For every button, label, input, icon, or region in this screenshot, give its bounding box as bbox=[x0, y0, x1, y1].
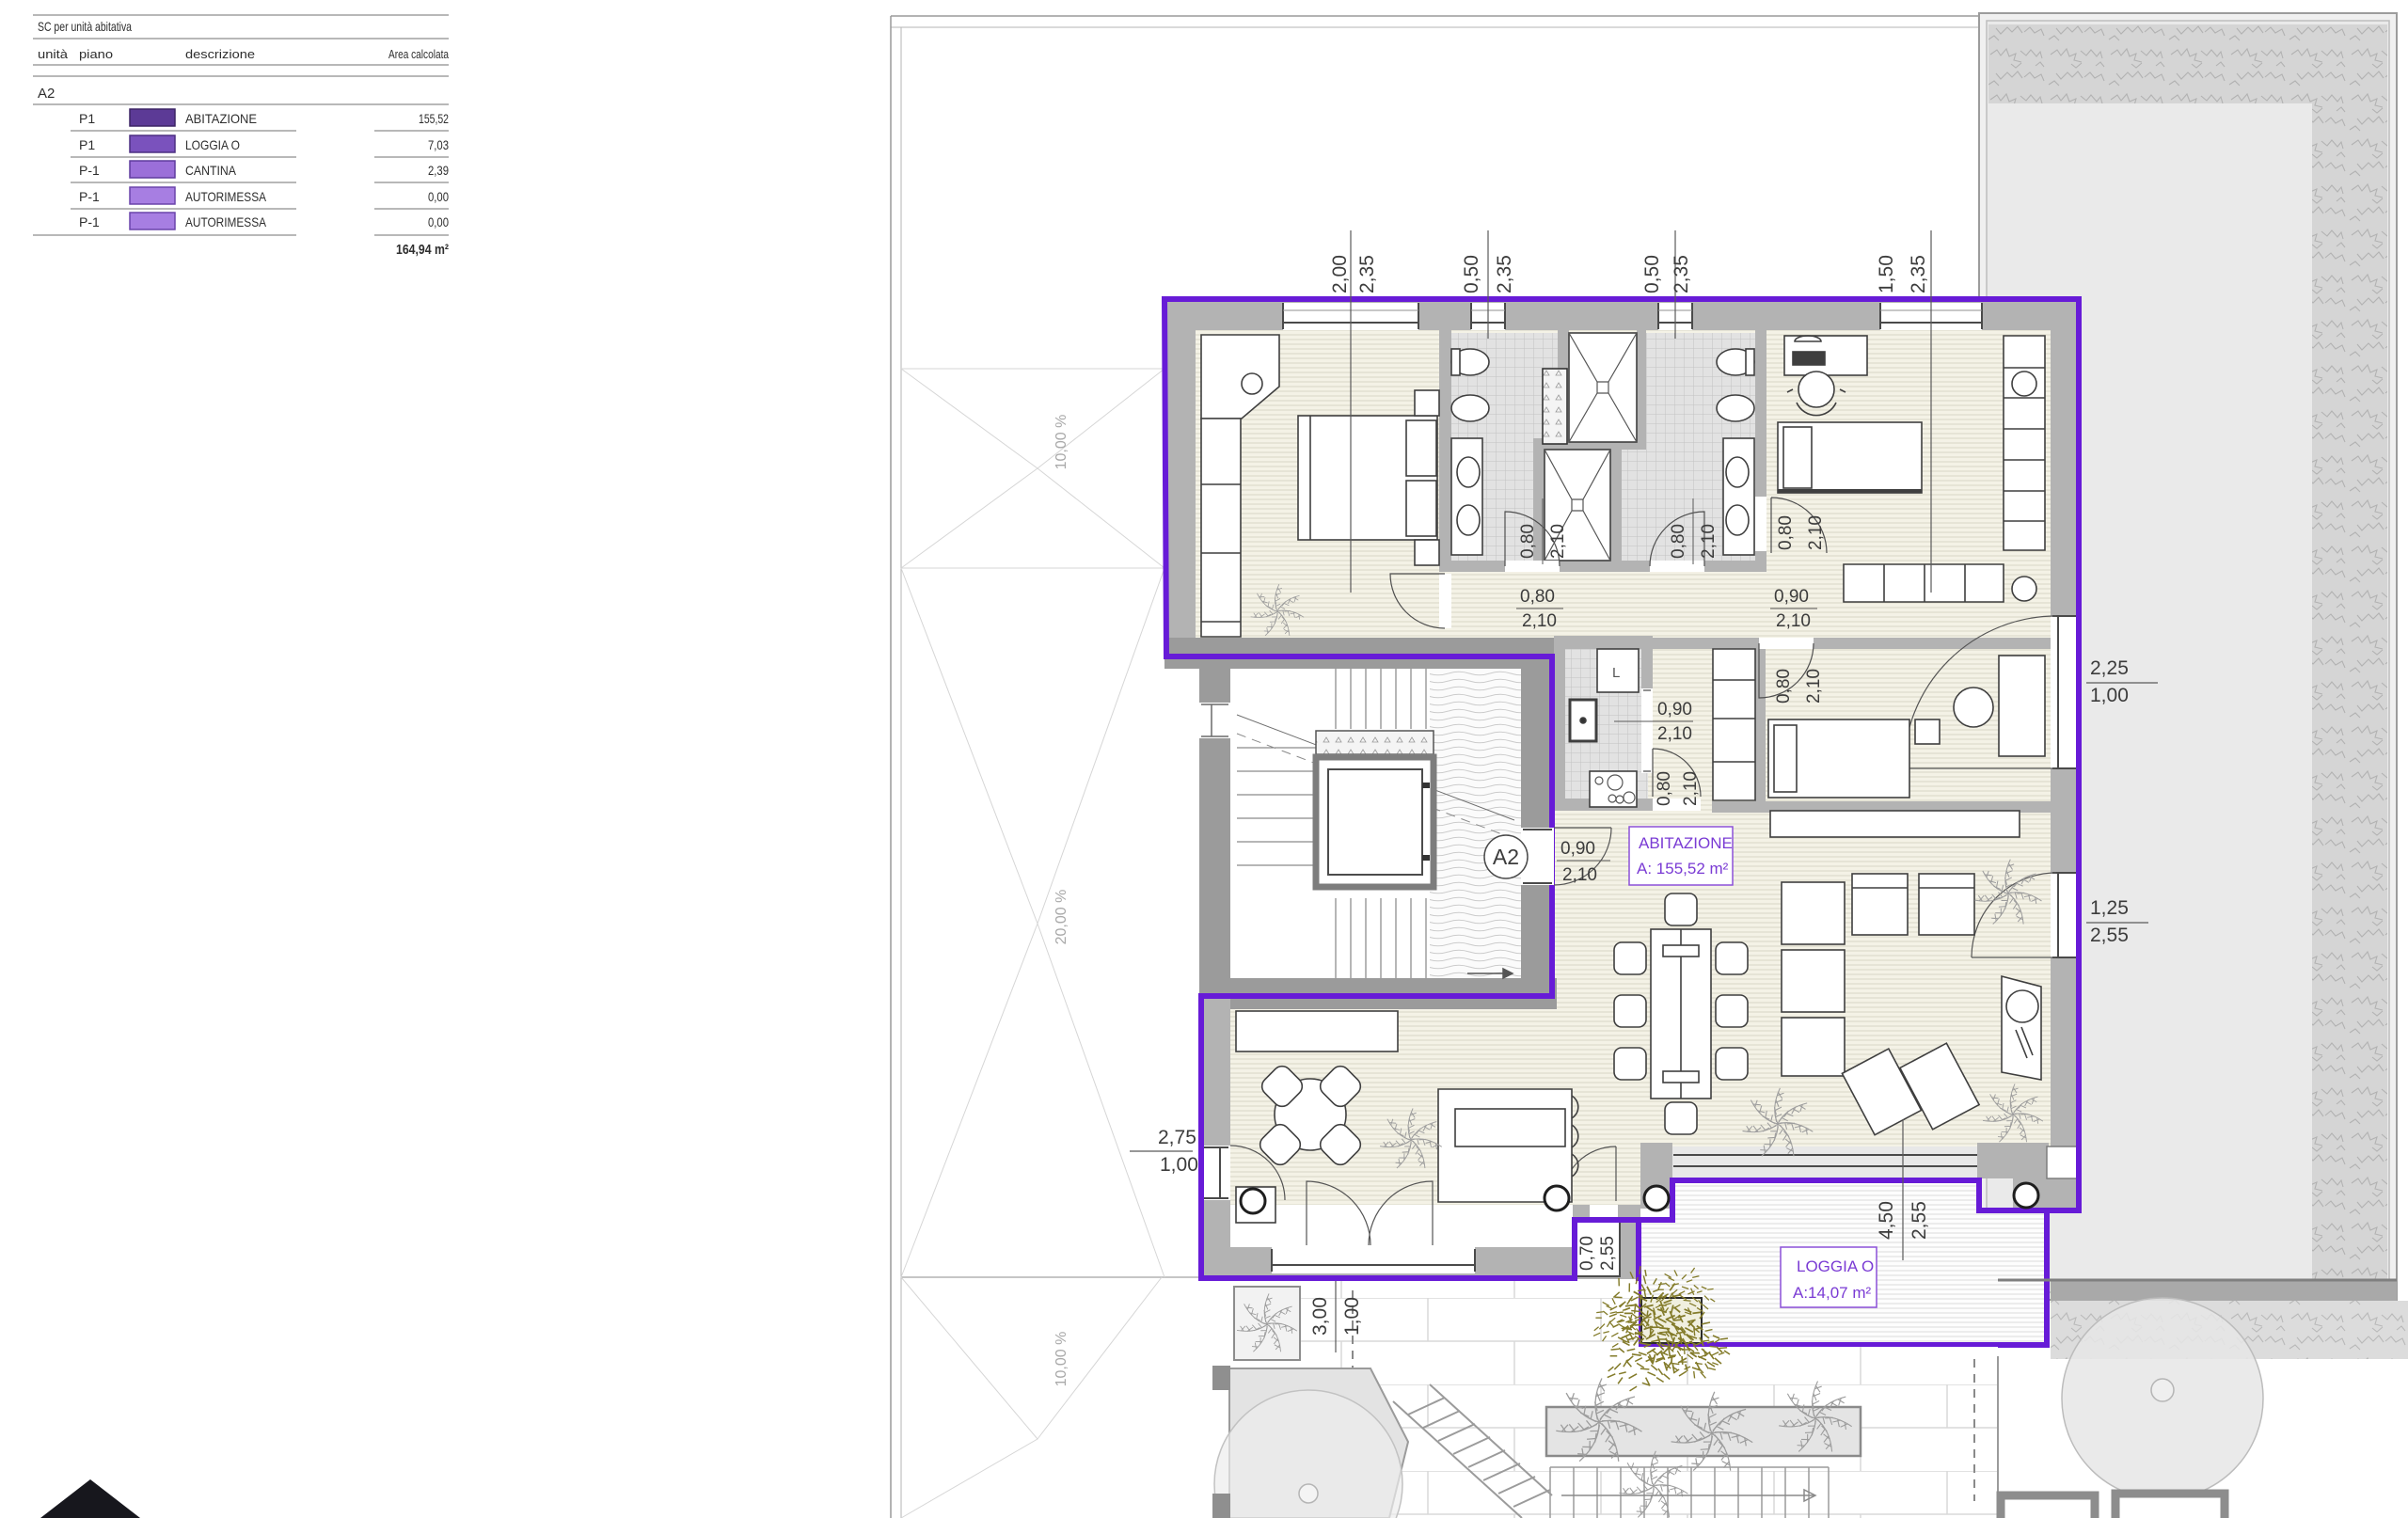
svg-text:AUTORIMESSA: AUTORIMESSA bbox=[185, 214, 267, 229]
svg-text:P-1: P-1 bbox=[79, 214, 100, 229]
svg-text:2,00: 2,00 bbox=[1329, 255, 1351, 293]
svg-text:0,70: 0,70 bbox=[1577, 1236, 1597, 1271]
svg-text:0,80: 0,80 bbox=[1774, 669, 1794, 704]
svg-text:A2: A2 bbox=[38, 86, 55, 102]
svg-text:2,10: 2,10 bbox=[1699, 524, 1719, 559]
svg-text:2,55: 2,55 bbox=[2090, 925, 2129, 946]
svg-text:unità: unità bbox=[38, 47, 69, 61]
svg-text:10,00 %: 10,00 % bbox=[1053, 415, 1069, 470]
svg-text:20,00 %: 20,00 % bbox=[1053, 890, 1069, 945]
svg-text:2,55: 2,55 bbox=[1909, 1201, 1930, 1240]
svg-text:P-1: P-1 bbox=[79, 163, 100, 178]
svg-text:2,10: 2,10 bbox=[1562, 865, 1597, 885]
svg-text:1,00: 1,00 bbox=[1160, 1154, 1198, 1176]
svg-text:1,50: 1,50 bbox=[1876, 255, 1897, 293]
svg-text:P-1: P-1 bbox=[79, 189, 100, 204]
svg-text:2,10: 2,10 bbox=[1681, 771, 1701, 806]
svg-text:LOGGIA O: LOGGIA O bbox=[1797, 1257, 1874, 1275]
svg-text:4,50: 4,50 bbox=[1876, 1201, 1897, 1240]
svg-text:1,00: 1,00 bbox=[2090, 685, 2129, 706]
svg-text:2,25: 2,25 bbox=[2090, 657, 2129, 679]
svg-text:SC per unità abitativa: SC per unità abitativa bbox=[38, 19, 132, 34]
svg-text:10,00 %: 10,00 % bbox=[1053, 1332, 1069, 1387]
svg-text:ABITAZIONE: ABITAZIONE bbox=[185, 111, 257, 126]
svg-text:3,00: 3,00 bbox=[1309, 1297, 1331, 1336]
svg-text:0,90: 0,90 bbox=[1657, 700, 1692, 719]
svg-text:0,50: 0,50 bbox=[1641, 255, 1663, 293]
svg-text:1,25: 1,25 bbox=[2090, 897, 2129, 919]
svg-text:2,10: 2,10 bbox=[1657, 724, 1692, 744]
svg-text:2,35: 2,35 bbox=[1908, 255, 1929, 293]
svg-text:0,50: 0,50 bbox=[1461, 255, 1482, 293]
svg-text:2,10: 2,10 bbox=[1804, 669, 1824, 704]
svg-text:2,35: 2,35 bbox=[1494, 255, 1515, 293]
svg-text:155,52: 155,52 bbox=[419, 111, 449, 126]
svg-text:7,03: 7,03 bbox=[428, 137, 449, 152]
svg-text:A: 155,52 m²: A: 155,52 m² bbox=[1637, 860, 1729, 878]
svg-text:0,00: 0,00 bbox=[428, 214, 449, 229]
svg-text:1,00: 1,00 bbox=[1341, 1297, 1363, 1336]
svg-text:descrizione: descrizione bbox=[185, 47, 255, 61]
svg-text:AUTORIMESSA: AUTORIMESSA bbox=[185, 189, 267, 204]
svg-text:0,80: 0,80 bbox=[1520, 587, 1555, 607]
svg-text:0,80: 0,80 bbox=[1518, 524, 1538, 559]
svg-text:0,90: 0,90 bbox=[1560, 839, 1595, 859]
svg-text:2,10: 2,10 bbox=[1548, 524, 1568, 559]
svg-text:2,75: 2,75 bbox=[1158, 1127, 1196, 1148]
svg-text:2,35: 2,35 bbox=[1356, 255, 1378, 293]
svg-text:Area calcolata: Area calcolata bbox=[388, 47, 450, 61]
svg-text:P1: P1 bbox=[79, 111, 95, 126]
svg-text:A:14,07 m²: A:14,07 m² bbox=[1793, 1284, 1871, 1302]
svg-text:0,80: 0,80 bbox=[1655, 771, 1674, 806]
svg-text:0,90: 0,90 bbox=[1774, 587, 1809, 607]
svg-text:0,00: 0,00 bbox=[428, 189, 449, 204]
svg-text:2,10: 2,10 bbox=[1522, 611, 1557, 631]
svg-text:L: L bbox=[1612, 665, 1620, 681]
svg-text:P1: P1 bbox=[79, 137, 95, 152]
svg-text:2,39: 2,39 bbox=[428, 163, 449, 178]
svg-text:ABITAZIONE: ABITAZIONE bbox=[1639, 834, 1733, 852]
svg-text:2,10: 2,10 bbox=[1806, 515, 1826, 550]
svg-text:CANTINA: CANTINA bbox=[185, 163, 237, 178]
svg-text:A2: A2 bbox=[1493, 845, 1519, 869]
svg-text:2,10: 2,10 bbox=[1776, 611, 1811, 631]
svg-text:LOGGIA O: LOGGIA O bbox=[185, 137, 240, 152]
svg-text:164,94 m²: 164,94 m² bbox=[396, 242, 449, 258]
svg-text:2,35: 2,35 bbox=[1671, 255, 1692, 293]
svg-text:0,80: 0,80 bbox=[1669, 524, 1688, 559]
svg-text:piano: piano bbox=[79, 47, 113, 61]
svg-text:2,55: 2,55 bbox=[1598, 1236, 1618, 1271]
svg-text:0,80: 0,80 bbox=[1776, 515, 1796, 550]
